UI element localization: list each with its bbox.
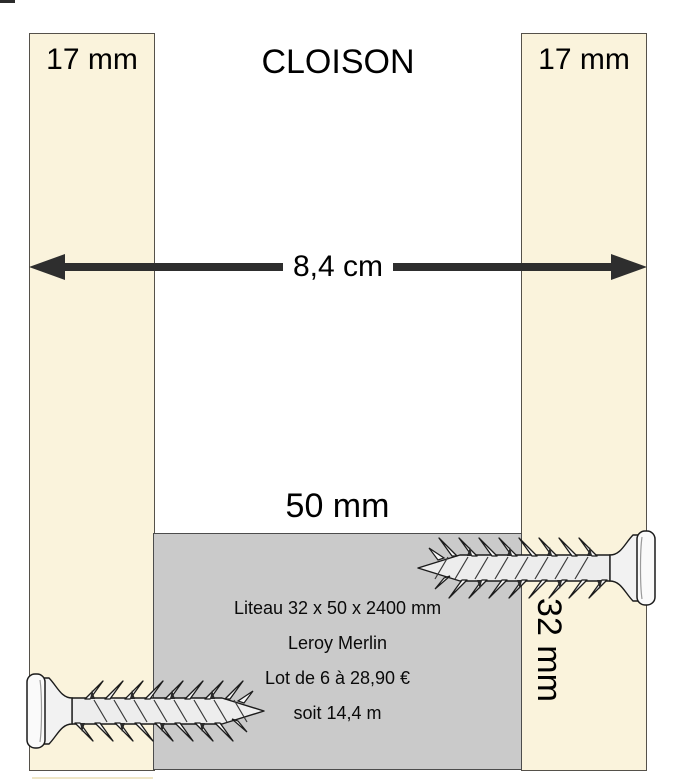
screw-icon xyxy=(414,529,660,607)
cloison-diagram: 17 mm 17 mm CLOISON 8,4 cm 50 mm Liteau … xyxy=(0,0,677,784)
corner-mark xyxy=(0,0,15,3)
liteau-width-label: 50 mm xyxy=(153,489,522,523)
liteau-thickness-label: 32 mm xyxy=(532,598,566,702)
liteau-store-text: Leroy Merlin xyxy=(288,633,387,654)
left-panel-thickness-label: 17 mm xyxy=(30,45,154,75)
baseline-mark xyxy=(32,777,153,779)
liteau-dimensions-text: Liteau 32 x 50 x 2400 mm xyxy=(234,598,441,619)
arrow-line-right xyxy=(393,263,611,271)
width-dimension-arrow: 8,4 cm xyxy=(29,254,647,280)
arrow-line-left xyxy=(65,263,283,271)
left-stud-panel: 17 mm xyxy=(29,33,155,771)
liteau-length-text: soit 14,4 m xyxy=(293,703,381,724)
page-title: CLOISON xyxy=(155,45,521,79)
right-panel-thickness-label: 17 mm xyxy=(522,45,646,75)
width-dimension-label: 8,4 cm xyxy=(283,252,393,282)
arrow-right-head-icon xyxy=(611,254,647,280)
liteau-price-text: Lot de 6 à 28,90 € xyxy=(265,668,410,689)
arrow-left-head-icon xyxy=(29,254,65,280)
screw-icon xyxy=(22,672,268,750)
